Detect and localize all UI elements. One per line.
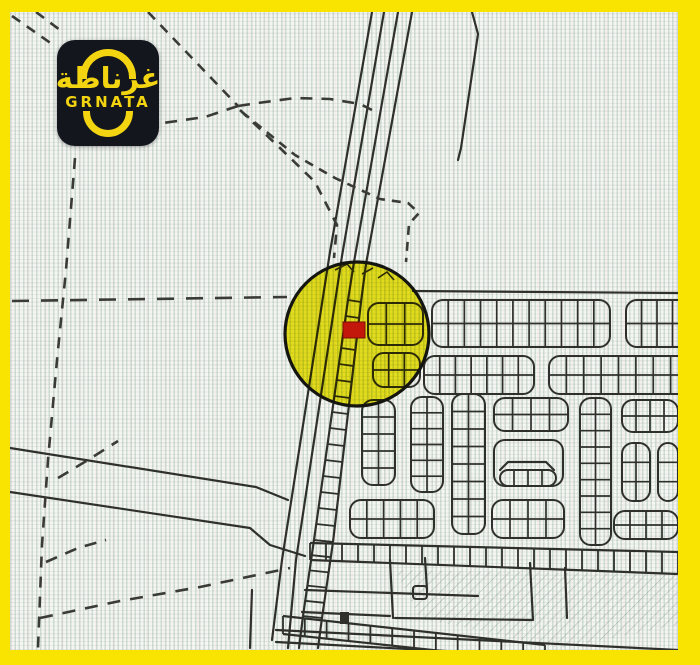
- boundary-dashed: [12, 16, 52, 44]
- plot-block: [658, 443, 678, 501]
- road-edge: [310, 543, 678, 552]
- grnata-logo: غرناطة GRNATA: [57, 40, 159, 146]
- logo-latin-text: GRNATA: [65, 95, 151, 110]
- road-line: [348, 12, 398, 300]
- road-line: [390, 560, 393, 618]
- plot-rung: [310, 570, 329, 572]
- boundary-dashed: [163, 106, 238, 123]
- boundary-dashed: [242, 112, 419, 262]
- road-line: [276, 642, 540, 650]
- road-line: [361, 12, 412, 302]
- plot-rung: [321, 492, 339, 494]
- road-line: [413, 291, 678, 293]
- road-line: [10, 492, 305, 556]
- logo-arabic-text: غرناطة: [56, 63, 161, 95]
- plot-rung: [323, 476, 340, 478]
- plot-rung: [312, 555, 331, 557]
- plot-rung: [325, 460, 342, 462]
- plot-rung: [328, 444, 345, 446]
- plot-rung: [314, 540, 333, 542]
- boundary-dashed: [148, 12, 238, 106]
- boundary-dashed: [238, 98, 372, 110]
- selected-plot-marker: [343, 322, 365, 338]
- boundary-dashed: [46, 540, 106, 562]
- plot-rung: [307, 586, 326, 588]
- road-line: [458, 12, 478, 160]
- boundary-dashed: [12, 297, 287, 301]
- road-edge: [303, 540, 314, 616]
- plot-rung: [319, 508, 337, 510]
- road-line: [250, 590, 252, 648]
- plot-rung: [332, 412, 348, 414]
- road-line: [500, 462, 554, 470]
- map-mark: [340, 612, 349, 624]
- plot-rung: [305, 601, 324, 603]
- boundary-dashed: [240, 110, 337, 258]
- hatch-area: [395, 570, 678, 648]
- road-edge: [322, 542, 333, 618]
- plot-rung: [330, 428, 346, 430]
- boundary-dashed: [38, 158, 75, 648]
- logo-bottom-arc-icon: [83, 111, 133, 137]
- boundary-dashed: [36, 12, 60, 30]
- yellow-frame: غرناطة GRNATA: [0, 0, 700, 665]
- plot-rung: [316, 524, 335, 526]
- road-line: [10, 448, 288, 500]
